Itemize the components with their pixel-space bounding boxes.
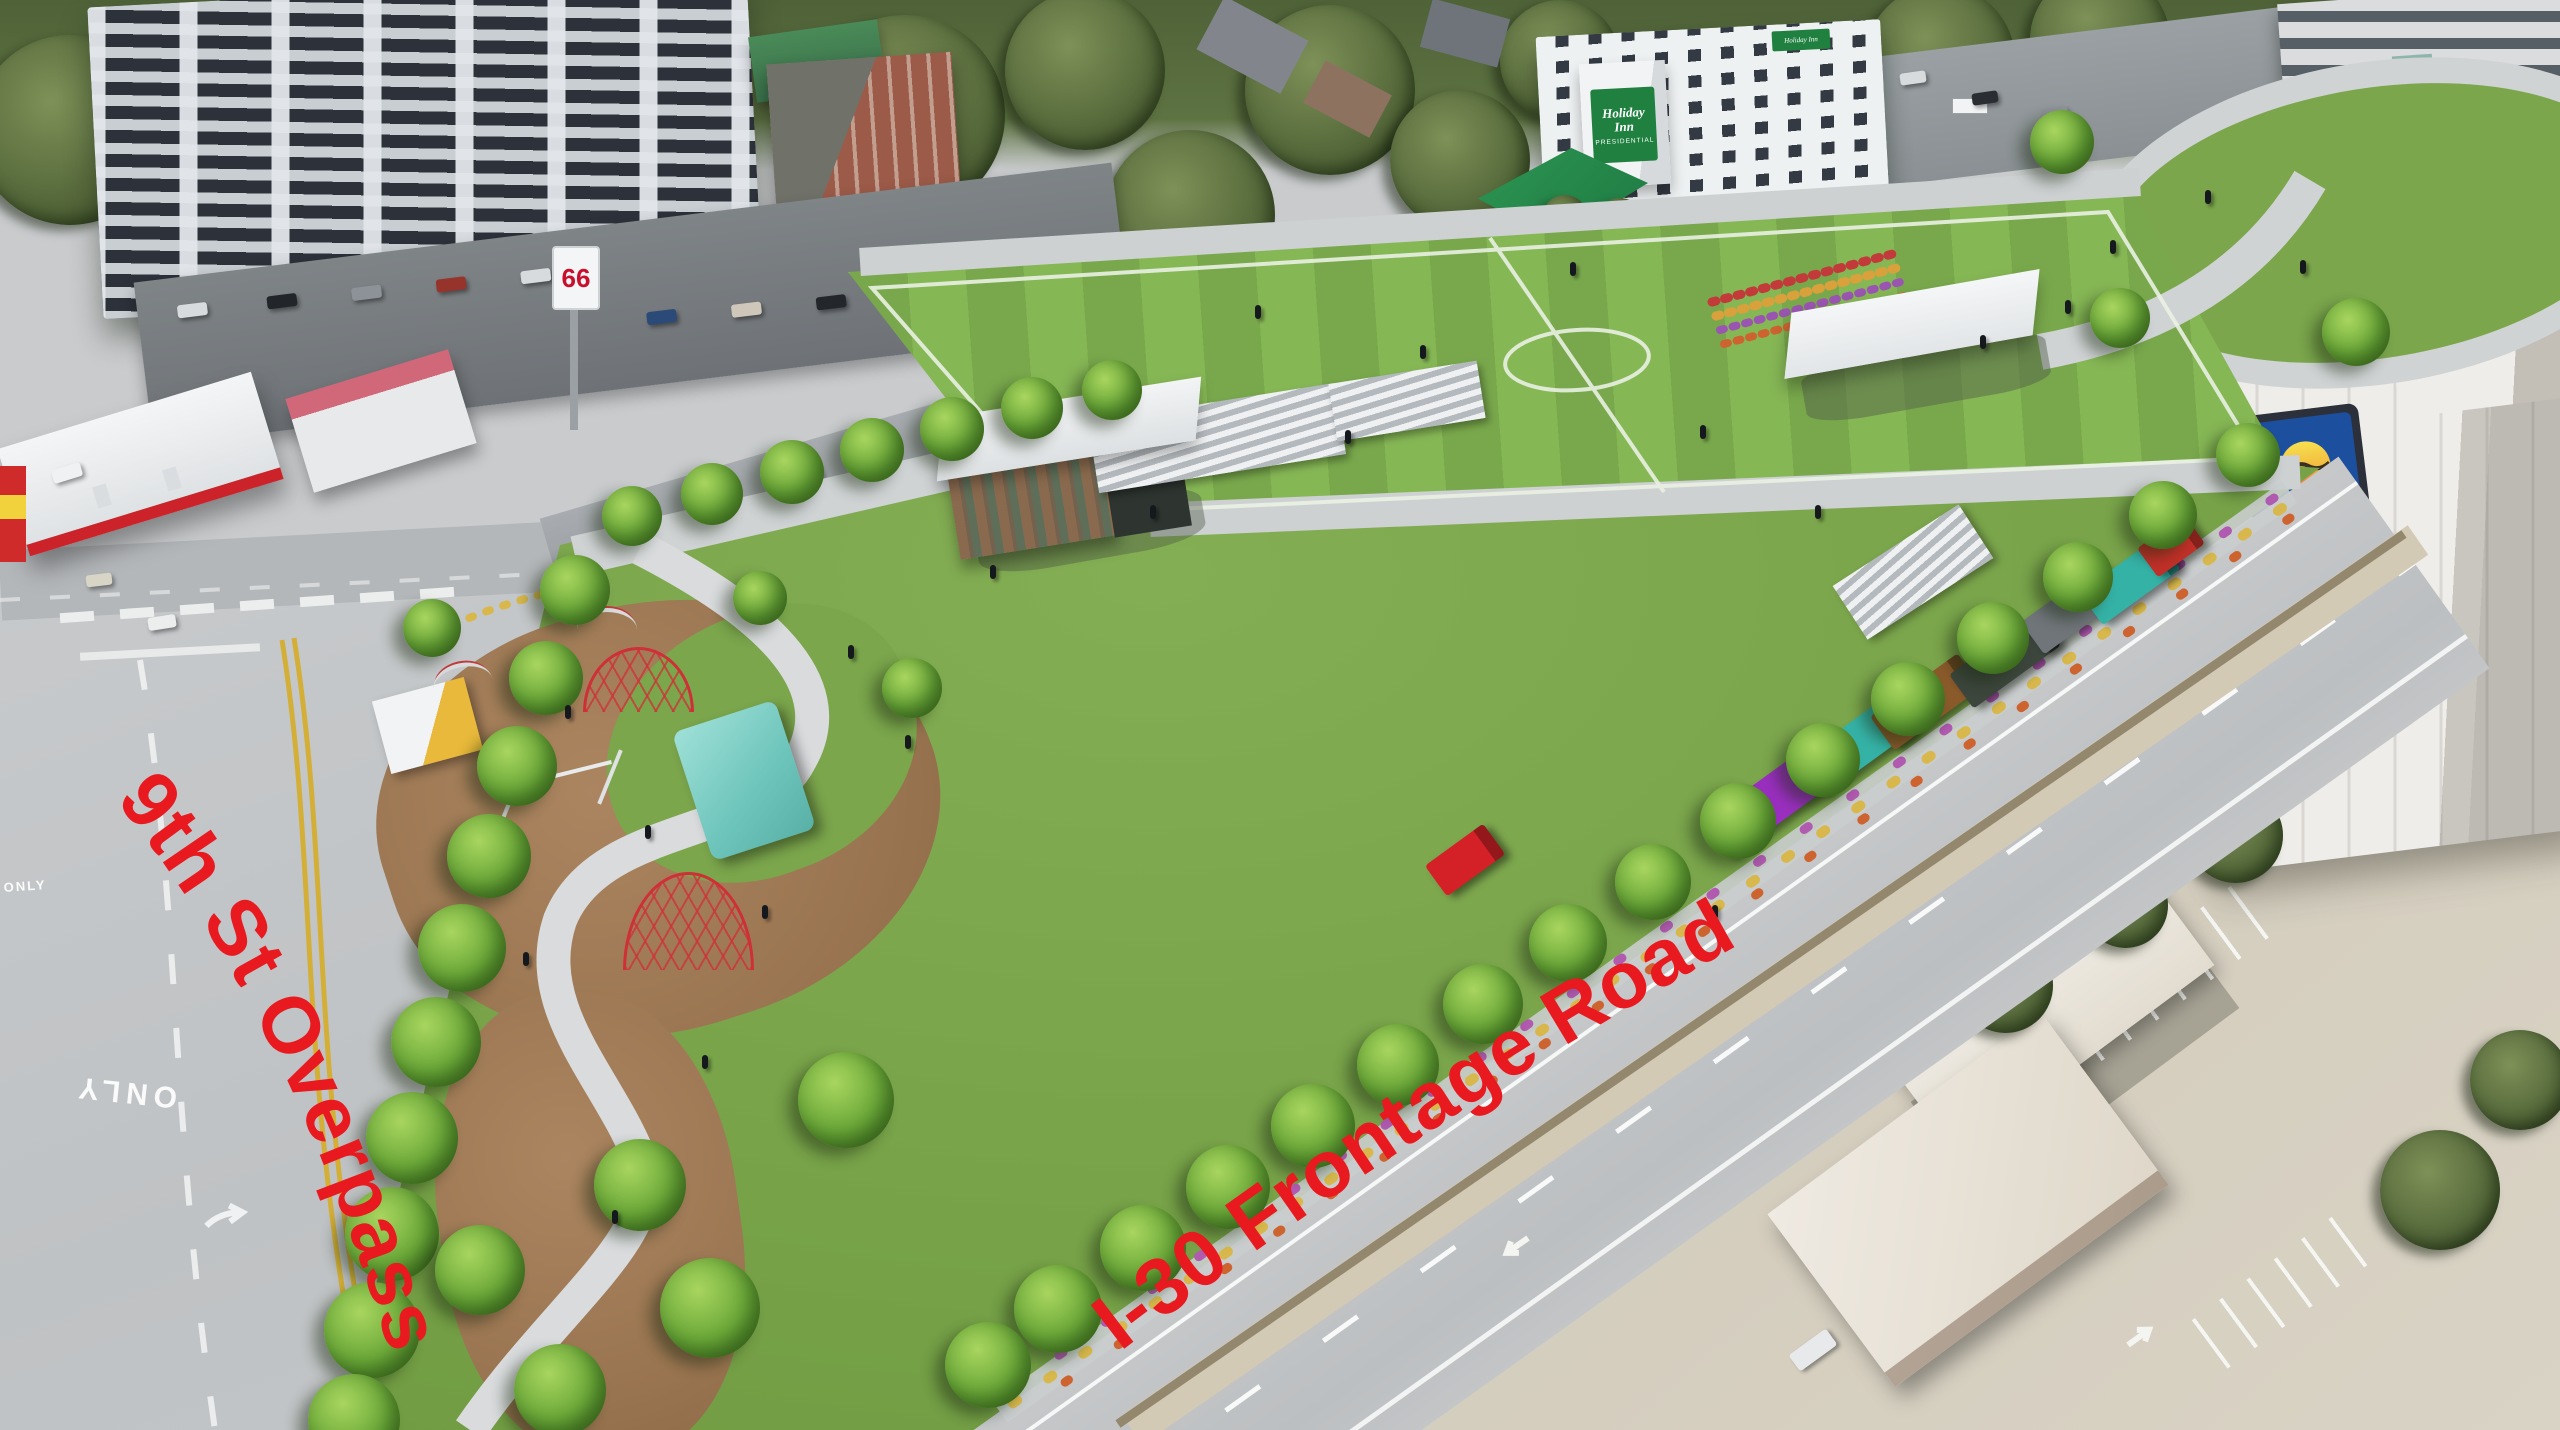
pavement-arrow	[1503, 1232, 1532, 1258]
only-marking-large: ONLY	[71, 1070, 178, 1114]
label-i30-frontage-road: I-30 Frontage Road	[1076, 881, 1748, 1365]
only-marking-small: ONLY	[3, 877, 47, 895]
turn-arrow-marking	[204, 1204, 244, 1226]
label-9th-st-overpass: 9th St Overpass	[102, 755, 460, 1360]
aerial-park-rendering: Holiday Inn PRESIDENTIAL Holiday Inn	[0, 0, 2560, 1430]
pavement-arrow	[2124, 1324, 2153, 1351]
labels-layer: ONLY ONLY 9th St Overpass I-30 Frontage …	[0, 0, 2560, 1430]
